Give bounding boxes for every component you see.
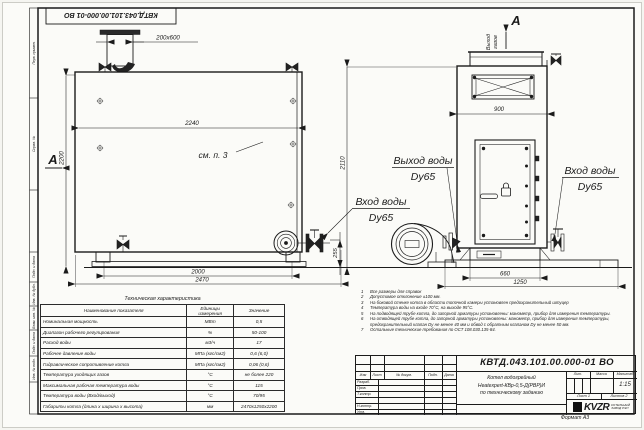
table-row: Рабочее давление водыМПа (кгс/см2)0,6 (6… <box>41 348 285 359</box>
dim-2470: 2470 <box>194 278 209 284</box>
spec-units: МПа (кгс/см2) <box>187 359 234 370</box>
spec-name: Максимальная рабочая температура воды <box>41 380 187 391</box>
note-number: 5 <box>361 311 370 316</box>
note-number: 2 <box>361 294 370 299</box>
note-number: 3 <box>361 300 370 305</box>
spec-name: Габариты котла (длина х ширина х высота) <box>41 401 187 412</box>
note-text: На боковой стенке котла в области топочн… <box>370 300 635 305</box>
note-text: Все размеры для справок <box>370 289 635 294</box>
title-block: Изм Лист № докум. Подп. Дата Разраб. Про… <box>355 355 636 414</box>
spec-table: Наименование показателя Единицы измерени… <box>40 304 285 412</box>
note-item: 2Допустимое отклонение ±100 мм. <box>361 294 635 299</box>
note-item: 6На отводящей трубе котла, до запорной а… <box>361 316 635 326</box>
spec-col-name: Наименование показателя <box>41 305 187 317</box>
note-text: Температура воды на входе 70°С, на выход… <box>370 305 635 310</box>
sheets-value: 2 <box>625 394 627 398</box>
spec-name: Температура воды (Вход/выход) <box>41 391 187 402</box>
spec-value: 0,5 <box>234 317 285 328</box>
product-line: по техническому заданию <box>457 390 566 398</box>
spec-units: % <box>187 327 234 338</box>
spec-name: Номинальная мощность <box>41 317 187 328</box>
margin-field: Перв. примен. <box>32 41 36 64</box>
note-item: 7Остальные технические требования по ОСТ… <box>361 327 635 332</box>
margin-field: Справ. № <box>32 136 36 152</box>
technical-notes: 1Все размеры для справок 2Допустимое отк… <box>361 289 635 332</box>
tb-company: KVZR КОТЕЛЬНЫЙ ЗАВОД РЭП <box>566 399 637 415</box>
outlet-dn: Dy65 <box>411 171 436 183</box>
note-item: 3На боковой стенке котла в области топоч… <box>361 300 635 305</box>
view-a-label-top: А <box>510 13 520 28</box>
note-text: Остальные технические требования по ОСТ … <box>370 327 635 332</box>
spec-units: °С <box>187 369 234 380</box>
spec-value: 0,6 (6,0) <box>234 348 285 359</box>
top-stamp-code: КВТД.043.101.00.000-01 ВО <box>64 11 158 20</box>
spec-value: не более 220 <box>234 369 285 380</box>
spec-value: 50-100 <box>234 327 285 338</box>
dim-chimney: 200х600 <box>155 35 180 42</box>
sheets-label: Листов <box>610 394 624 398</box>
table-row: Расход водым3/ч17 <box>41 338 285 349</box>
spec-value: 2470х1250х2200 <box>234 401 285 412</box>
kvzr-logo-icon <box>573 402 582 412</box>
margin-field: Инв. № подл. <box>32 358 36 380</box>
dim-1250: 1250 <box>513 280 527 286</box>
product-line: Heatexpert-КВр-0,5-Д(РВР)И <box>457 383 566 391</box>
inlet2-dn: Dy65 <box>578 181 603 193</box>
dim-900: 900 <box>494 107 505 113</box>
sheet-value: 1 <box>588 394 590 398</box>
note-text: На отводящей трубе котла, до запорной ар… <box>370 316 635 326</box>
tb-scale-label: Масштаб <box>613 371 637 378</box>
spec-value: 70/95 <box>234 391 285 402</box>
ref-note: см. п. 3 <box>199 150 228 160</box>
kvzr-logo-subtitle: КОТЕЛЬНЫЙ ЗАВОД РЭП <box>611 404 630 411</box>
margin-field: Взам. инв. № <box>32 307 36 329</box>
tb-product-name: Котел водогрейный Heatexpert-КВр-0,5-Д(Р… <box>457 371 566 404</box>
note-item: 1Все размеры для справок <box>361 289 635 294</box>
spec-units: м3/ч <box>187 338 234 349</box>
table-row: Температура воды (Вход/выход)°С70/95 <box>41 391 285 402</box>
note-text: Допустимое отклонение ±100 мм. <box>370 294 635 299</box>
inlet-label: Вход воды <box>356 196 407 208</box>
spec-units: °С <box>187 380 234 391</box>
product-line: Котел водогрейный <box>457 375 566 383</box>
table-row: Номинальная мощностьМВт0,5 <box>41 317 285 328</box>
chimney-flange <box>100 30 140 35</box>
spec-name: Температура уходящих газов <box>41 369 187 380</box>
spec-name: Расход воды <box>41 338 187 349</box>
table-row: Температура уходящих газов°Сне более 220 <box>41 369 285 380</box>
table-row: Габариты котла (длина х ширина х высота)… <box>41 401 285 412</box>
table-row: Максимальная рабочая температура воды°С1… <box>41 380 285 391</box>
margin-field: Инв. № дубл. <box>32 283 36 305</box>
tb-row-utv: Утв. <box>357 409 378 415</box>
tb-col-data: Дата <box>442 371 456 379</box>
tb-col-list: Лист <box>370 371 384 379</box>
spec-name: Гидравлическое сопротивление котла <box>41 359 187 370</box>
note-number: 1 <box>361 289 370 294</box>
dim-2240: 2240 <box>184 120 199 127</box>
tb-lit: Лит. <box>566 371 590 378</box>
margin-field: Подп. и дата <box>32 332 36 354</box>
format-label: Формат А3 <box>540 415 610 421</box>
inlet2-label: Вход воды <box>565 165 616 177</box>
table-row: Гидравлическое сопротивление котлаМПа (к… <box>41 359 285 370</box>
tb-col-izm: Изм <box>356 371 370 379</box>
margin-field: Подп. и дата <box>32 256 36 278</box>
spec-name: Диапазон рабочего регулирования <box>41 327 187 338</box>
note-item: 5На подводящей трубе котла, до запорной … <box>361 311 635 316</box>
tb-massa: Масса <box>590 371 613 378</box>
spec-col-units: Единицы измерения <box>187 305 234 317</box>
kvzr-logo-text: KVZR <box>584 402 609 413</box>
spec-value: 17 <box>234 338 285 349</box>
note-item: 4Температура воды на входе 70°С, на выхо… <box>361 305 635 310</box>
sheet-label: Лист <box>577 394 587 398</box>
spec-units: °С <box>187 391 234 402</box>
tb-col-doc: № докум. <box>384 371 424 379</box>
gas-out-text2: газов <box>493 35 499 49</box>
spec-col-value: Значение <box>234 305 285 317</box>
dim-2000: 2000 <box>190 270 205 276</box>
spec-units: мм <box>187 401 234 412</box>
spec-units: МПа (кгс/см2) <box>187 348 234 359</box>
dim-2200: 2200 <box>59 151 66 166</box>
spec-value: 115 <box>234 380 285 391</box>
spec-units: МВт <box>187 317 234 328</box>
dim-660: 660 <box>500 272 511 278</box>
tb-doc-code: КВТД.043.101.00.000-01 ВО <box>457 356 637 371</box>
note-number: 7 <box>361 327 370 332</box>
tb-scale-value: 1:15 <box>613 378 637 393</box>
table-row: Диапазон рабочего регулирования%50-100 <box>41 327 285 338</box>
dim-255: 255 <box>333 247 339 258</box>
note-text: На подводящей трубе котла, до запорной а… <box>370 311 635 316</box>
inlet-dn: Dy65 <box>369 212 394 224</box>
spec-name: Рабочее давление воды <box>41 348 187 359</box>
spec-table-title: Техническая характеристика <box>40 296 285 302</box>
spec-value: 0,06 (0,6) <box>234 359 285 370</box>
tb-col-podp: Подп. <box>424 371 442 379</box>
tb-row-tkontr: Т.контр. <box>357 391 378 397</box>
gas-out-text1: Выход <box>486 34 492 50</box>
note-number: 4 <box>361 305 370 310</box>
dim-2110: 2110 <box>340 156 347 171</box>
note-number: 6 <box>361 316 370 326</box>
view-a-label-left: А <box>47 152 57 167</box>
spec-header-row: Наименование показателя Единицы измерени… <box>41 305 285 317</box>
outlet-label: Выход воды <box>393 155 452 167</box>
